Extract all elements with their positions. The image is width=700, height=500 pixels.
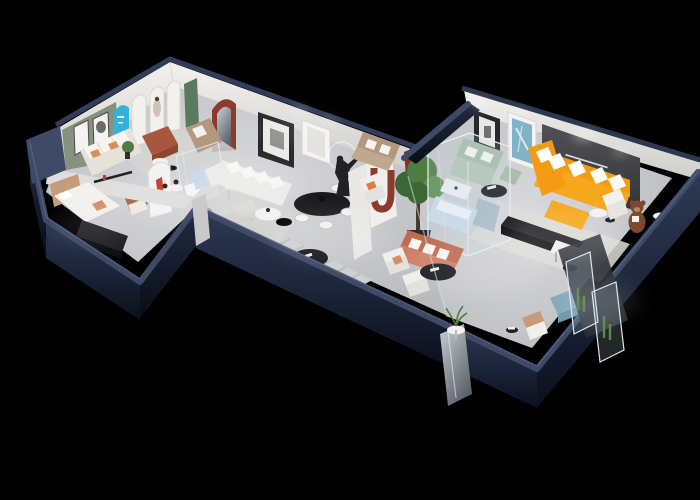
teal-abstract-painting [508, 112, 536, 170]
teddy-bear-figure [629, 200, 646, 233]
plant-pot [125, 152, 130, 159]
poster-figure-head [155, 97, 159, 101]
mark [117, 116, 124, 118]
arch-poster-3 [167, 81, 180, 132]
table-vase [319, 196, 325, 202]
floorplan-render [0, 0, 700, 500]
mark [118, 122, 123, 124]
shelf-decor [103, 175, 106, 180]
poster-figure [153, 99, 161, 117]
art [484, 126, 491, 138]
plant-foliage [122, 141, 134, 153]
render-stage [0, 0, 700, 500]
book [508, 327, 515, 330]
plate-art [96, 121, 106, 133]
teddy-book [632, 216, 639, 222]
teddy-muzzle [634, 207, 640, 212]
spotlight-glow [573, 132, 595, 140]
